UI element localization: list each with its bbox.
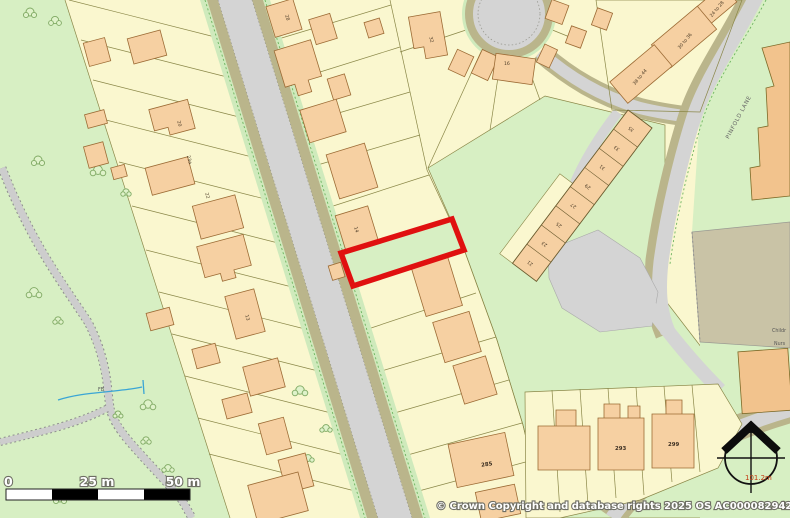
house-number-label: 299 [668, 442, 680, 448]
nursery-label: Nurs [774, 341, 786, 347]
spot-height-label: 101.2m [745, 474, 772, 482]
scale-zero-label: 0 [4, 474, 13, 489]
building [738, 348, 790, 413]
os-map: 35 33 31 29 27 25 23 21 28 32 16 20 23a … [0, 0, 790, 518]
scale-end-label: 50 m [166, 474, 201, 489]
nursery-label: Childr [772, 328, 786, 334]
roundabout [465, 0, 553, 58]
attribution-text: © Crown Copyright and database rights 20… [436, 501, 790, 512]
house-number-label: 293 [615, 446, 627, 452]
scale-mid-label: 25 m [80, 474, 115, 489]
map-canvas: 35 33 31 29 27 25 23 21 28 32 16 20 23a … [0, 0, 790, 518]
house-number-label: 16 [504, 61, 510, 67]
footbridge-label: FB [98, 387, 104, 393]
building [492, 53, 535, 84]
